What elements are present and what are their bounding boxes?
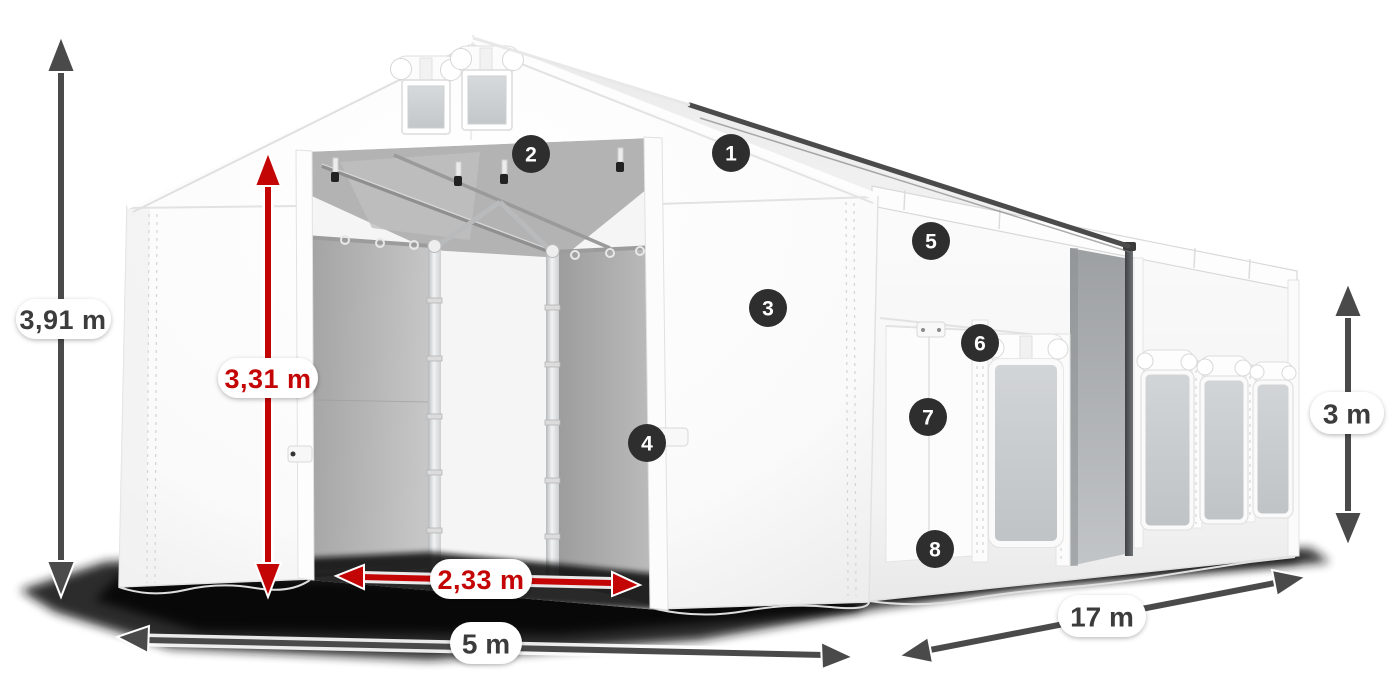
length-label: 17 m [1058,595,1146,637]
mesh-window-3 [1197,356,1251,524]
badge-7-number: 7 [922,407,934,430]
badge-5-number: 5 [925,231,937,254]
mesh-window-2 [1137,350,1197,530]
tent-product-diagram: 3,91 m 3,31 m 2,33 m 5 m [0,0,1400,700]
hotspot-badge-3[interactable]: 3 [749,289,787,327]
side-door-panel [886,322,972,562]
entrance-left-curtain [306,238,430,578]
mesh-window-1 [984,334,1068,547]
badge-6-number: 6 [974,333,986,356]
door-handle-left [288,446,312,462]
tent-diagram-svg: 3,91 m 3,31 m 2,33 m 5 m [0,0,1400,700]
badge-1-number: 1 [725,143,737,166]
hotspot-badge-4[interactable]: 4 [628,424,666,462]
width-value: 5 m [462,629,510,660]
hotspot-badge-1[interactable]: 1 [712,134,750,172]
mesh-window-4 [1250,362,1296,518]
hotspot-badge-5[interactable]: 5 [912,222,950,260]
width-label: 5 m [450,622,522,664]
hotspot-badge-6[interactable]: 6 [961,324,999,362]
side-height-value: 3 m [1323,399,1371,430]
side-height-arrow: 3 m [1310,283,1384,546]
total-height-value: 3,91 m [19,305,106,335]
badge-2-number: 2 [525,144,537,167]
entrance-width-value: 2,33 m [437,565,524,595]
side-height-label: 3 m [1310,392,1384,434]
total-height-label: 3,91 m [16,299,111,339]
entrance-width-label: 2,33 m [430,559,532,599]
hotspot-badge-8[interactable]: 8 [916,530,954,568]
vent-window-right [451,46,524,130]
badge-8-number: 8 [929,539,941,562]
badge-4-number: 4 [641,433,653,456]
hotspot-badge-7[interactable]: 7 [909,398,947,436]
entrance-height-label: 3,31 m [218,358,318,398]
total-height-arrow: 3,91 m [16,36,111,597]
hotspot-badge-2[interactable]: 2 [512,135,550,173]
side-door-opening [1070,242,1136,566]
length-value: 17 m [1070,602,1134,633]
entrance-opening [300,130,665,620]
entrance-height-value: 3,31 m [224,364,311,394]
badge-3-number: 3 [762,298,774,321]
